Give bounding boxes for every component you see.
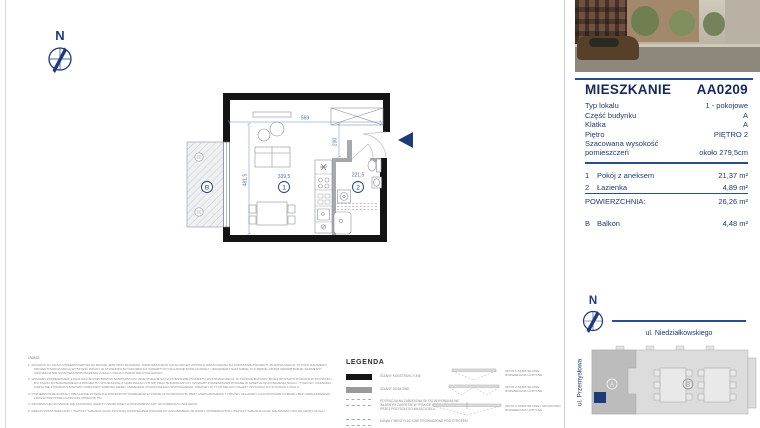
room-area: 21,37 m² [718, 171, 748, 180]
detail-label: Klatka [585, 120, 606, 129]
window-3-sash-icon [432, 400, 504, 417]
room-number: 2 [585, 183, 597, 192]
detail-label: Część budynku [585, 111, 636, 120]
dim-room2-label: 221,5 [352, 173, 365, 179]
compass-main: N [42, 28, 78, 76]
rooms-underline [585, 193, 748, 194]
panel-top-rule [575, 78, 753, 80]
detail-value: PIĘTRO 2 [714, 130, 748, 139]
site-plan-rule [612, 320, 746, 322]
dim-room1-label: 339,5 [278, 174, 291, 180]
window-2-sash-icon [448, 384, 502, 397]
living-room-furniture [249, 112, 295, 225]
detail-row: Klatka A [585, 120, 748, 129]
dim-hall-label: 230 [333, 138, 339, 147]
room-name: Pokój z aneksem [597, 171, 718, 180]
detail-value: 1 - pokojowe [705, 101, 748, 110]
detail-label: Typ lokalu [585, 101, 619, 110]
site-plan: A B [588, 344, 758, 422]
compass-main-n-label: N [55, 28, 64, 43]
notes-block: UWAGI: 1. ARANŻACJA LOKALU PRZEDSTAWIONA… [28, 356, 336, 416]
dim-top-label: 569 [301, 116, 310, 122]
site-block-a-label: A [610, 383, 614, 389]
partition-wall-swatch [346, 387, 372, 393]
detail-value: A [743, 120, 748, 129]
entrance-arrow-icon [398, 132, 413, 148]
bathroom-door [352, 144, 373, 159]
photo-building-right [725, 0, 760, 50]
window-1-sash-icon [450, 368, 500, 381]
floor-plan: 569 230 481,5 339,5 221,5 1 2 B [185, 88, 425, 248]
balcony-name: Balkon [597, 219, 723, 228]
balcony-number: B [585, 219, 597, 228]
balcony-window [224, 142, 230, 227]
room-area: 4,89 m² [723, 183, 748, 192]
room-number: 1 [585, 171, 597, 180]
total-area-value: 26,26 m² [718, 197, 748, 206]
dim-left-label: 481,5 [243, 174, 249, 187]
structural-wall-swatch [346, 374, 372, 380]
room-row: 1 Pokój z aneksem 21,37 m² [585, 171, 748, 180]
street-label-left: ul. Przemysłowa [577, 351, 586, 415]
apartment-location-marker [594, 392, 606, 403]
photo-tree [631, 6, 659, 36]
notes-title: UWAGI: [28, 356, 336, 360]
detail-row: Szacowana wysokość pomieszczeń około 279… [585, 139, 748, 157]
window-1-label: OKNO 1-SKRZYDŁOWE ROZWIERANO-UCHYLNE [505, 369, 561, 377]
detail-value: około 279,5cm [699, 148, 748, 157]
note-item-2: 2. WYMIARY POMIESZCZEŃ, LOKALIZACJE PRZY… [28, 377, 336, 389]
note-item-3: 3. POWIERZCHNIE ZOSTAŁY OBLICZONE W ŚWIE… [28, 392, 336, 400]
detail-row: Piętro PIĘTRO 2 [585, 130, 748, 139]
note-item-4: 4. INFORMACJE NA KARCIE NIE STANOWIĄ OFE… [28, 402, 336, 406]
room1-marker: 1 [282, 185, 286, 192]
room2-marker: 2 [356, 185, 360, 192]
entrance-door [363, 132, 386, 157]
street-label-top: ul. Niedziałkowskiego [612, 330, 746, 337]
detail-label: Piętro [585, 130, 605, 139]
page-left-border [5, 0, 6, 428]
detail-row: Typ lokalu 1 - pokojowe [585, 101, 748, 110]
room-name: Łazienka [597, 183, 723, 192]
dashed-line-swatch [346, 419, 372, 426]
balcony-row: B Balkon 4,48 m² [585, 219, 748, 228]
bathroom-fixtures [334, 159, 382, 234]
compass-panel-n-label: N [589, 295, 597, 307]
legend-label: KANAŁY WENTYLACYJNE PROWADZONE POD STROP… [380, 419, 472, 423]
photo-car-windshield [589, 38, 619, 47]
dashed-line-swatch [346, 399, 372, 406]
balcony-area: 4,48 m² [723, 219, 748, 228]
panel-divider [564, 0, 565, 428]
photo-tree [703, 12, 725, 36]
window-2-label: OKNO 2-SKRZYDŁOWE ROZWIERANO-UCHYLNE [505, 385, 561, 393]
wardrobe [331, 108, 383, 125]
rooms-top-rule [585, 162, 748, 164]
note-item-5: 5. RZECZYWISTA WIELKOŚĆ I KSZTAŁT TARASU… [28, 409, 336, 413]
detail-label: Szacowana wysokość pomieszczeń [585, 139, 680, 157]
note-item-1: 1. ARANŻACJA LOKALU PRZEDSTAWIONA NA RZU… [28, 363, 336, 375]
legend-title: LEGENDA [346, 359, 384, 366]
building-photo [575, 0, 760, 72]
window-3-label: OKNO 3-SKRZYDŁOWE I ŚRODKOWO ROZWIERANO-… [505, 404, 561, 412]
total-area-label: POWIERZCHNIA: [585, 197, 718, 206]
room-row: 2 Łazienka 4,89 m² [585, 183, 748, 192]
photo-tree [669, 10, 695, 36]
balcony-marker: B [205, 185, 209, 192]
legend-vent-ducts: KANAŁY WENTYLACYJNE PROWADZONE POD STROP… [346, 419, 472, 426]
kitchen-annex [315, 160, 332, 233]
site-block-b-label: B [686, 383, 690, 389]
apartment-code: AA0209 [585, 82, 748, 97]
compass-panel: N [579, 293, 609, 335]
detail-row: Część budynku A [585, 111, 748, 120]
total-area-row: POWIERZCHNIA: 26,26 m² [585, 197, 748, 206]
detail-value: A [743, 111, 748, 120]
